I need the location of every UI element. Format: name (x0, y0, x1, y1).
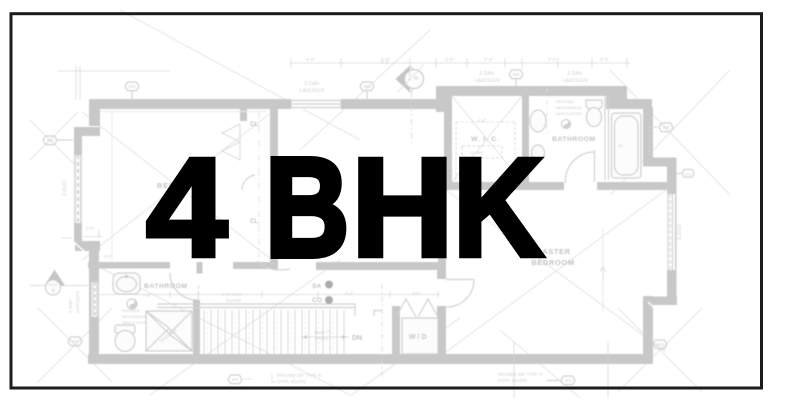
svg-text:2-2x10: 2-2x10 (677, 224, 683, 240)
svg-text:PROVIDE 5/8" TYPE 'X': PROVIDE 5/8" TYPE 'X' (277, 373, 322, 378)
svg-text:GYPS. BOARD: GYPS. BOARD (498, 378, 527, 383)
svg-text:1'-6": 1'-6" (86, 226, 95, 231)
svg-text:W3: W3 (129, 84, 136, 89)
svg-text:VENTILATION: VENTILATION (556, 111, 582, 116)
svg-text:GUARD: GUARD (226, 298, 241, 303)
svg-text:B: B (265, 129, 349, 286)
svg-text:K: K (453, 130, 544, 287)
svg-text:W3: W3 (232, 377, 239, 382)
svg-text:B+B/O: B+B/O (316, 336, 329, 341)
svg-text:W4: W4 (47, 138, 54, 143)
svg-text:2-2x8+: 2-2x8+ (567, 71, 583, 77)
svg-text:7'-6": 7'-6" (143, 293, 152, 298)
svg-text:W8: W8 (663, 125, 670, 130)
svg-text:2-2x8+: 2-2x8+ (304, 81, 320, 87)
svg-text:VENTILATION: VENTILATION (122, 320, 148, 325)
svg-text:2'-8": 2'-8" (600, 57, 609, 62)
svg-text:3'-4": 3'-4" (484, 57, 493, 62)
svg-text:W3: W3 (72, 339, 79, 344)
svg-text:3'-0": 3'-0" (548, 57, 557, 62)
svg-text:CO: CO (312, 297, 322, 304)
svg-text:2'-4": 2'-4" (345, 291, 354, 296)
svg-text:L4x3.5x1/4: L4x3.5x1/4 (475, 78, 500, 84)
svg-text:L4x3.5x1/4: L4x3.5x1/4 (300, 88, 325, 94)
svg-text:W3: W3 (364, 84, 371, 89)
svg-text:2'-2": 2'-2" (381, 60, 390, 65)
svg-text:4: 4 (146, 129, 227, 286)
svg-text:4'-4": 4'-4" (478, 118, 487, 123)
svg-text:MECHANICAL: MECHANICAL (556, 105, 583, 110)
svg-text:2-2x8+: 2-2x8+ (68, 299, 73, 313)
svg-text:4'-6": 4'-6" (306, 57, 315, 62)
svg-text:5A: 5A (618, 143, 623, 148)
svg-text:BATHROOM: BATHROOM (552, 136, 596, 143)
svg-text:MECHANICAL: MECHANICAL (122, 314, 149, 319)
svg-text:2'-6": 2'-6" (412, 291, 421, 296)
svg-text:W8: W8 (513, 72, 520, 77)
svg-text:PROVIDE: PROVIDE (122, 308, 140, 313)
svg-text:CL.: CL. (250, 122, 260, 128)
svg-text:L4x3.5x1/4: L4x3.5x1/4 (563, 78, 588, 84)
svg-text:H: H (351, 130, 454, 287)
svg-text:L4x3.5x1/4: L4x3.5x1/4 (75, 290, 80, 313)
svg-text:2'-8": 2'-8" (445, 57, 454, 62)
svg-text:2-2x10: 2-2x10 (62, 180, 68, 196)
svg-text:W3: W3 (565, 378, 572, 383)
svg-text:36x67.7": 36x67.7" (314, 330, 331, 335)
svg-text:A-10: A-10 (49, 283, 57, 287)
svg-text:W / D: W / D (409, 334, 427, 341)
svg-text:2-2x8+: 2-2x8+ (479, 71, 495, 77)
svg-text:PROVIDE 5/8" TYPE 'X': PROVIDE 5/8" TYPE 'X' (498, 372, 543, 377)
svg-text:W3: W3 (657, 342, 664, 347)
svg-text:4'-0": 4'-0" (104, 254, 113, 259)
svg-text:W3: W3 (685, 172, 692, 177)
svg-text:DN: DN (352, 335, 362, 342)
svg-text:GYPS. BOARD: GYPS. BOARD (277, 379, 306, 384)
svg-text:PROVIDE: PROVIDE (556, 99, 574, 104)
svg-text:CL.: CL. (250, 219, 260, 225)
